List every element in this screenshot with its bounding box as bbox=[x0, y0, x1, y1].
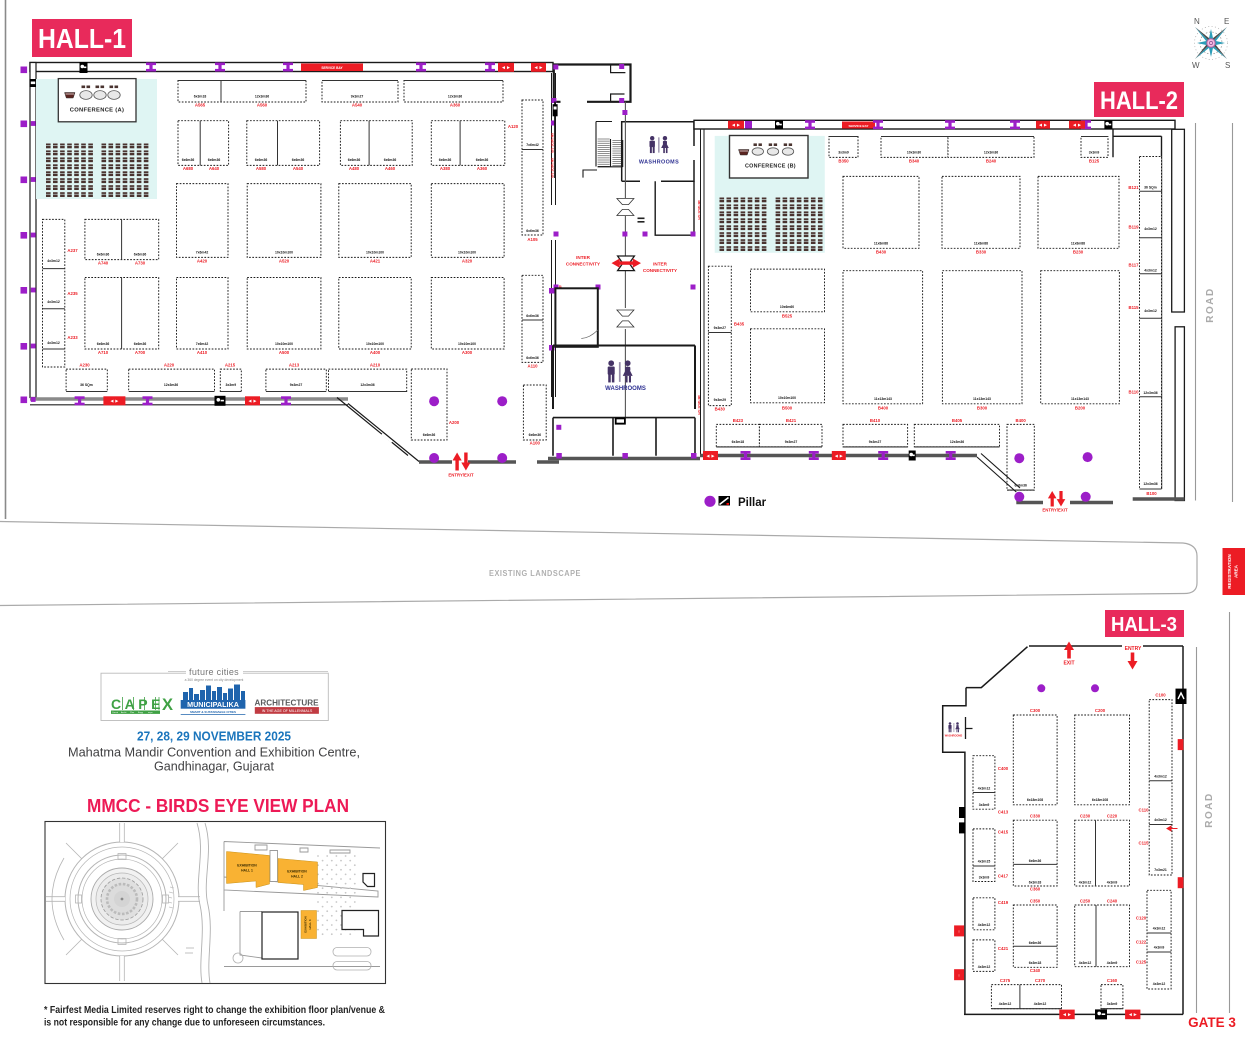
svg-text:C413: C413 bbox=[998, 810, 1009, 815]
svg-text:11x13m143: 11x13m143 bbox=[1071, 397, 1089, 401]
svg-text:Mahatma Mandir Convention and: Mahatma Mandir Convention and Exhibition… bbox=[68, 745, 360, 760]
svg-text:4x3m12: 4x3m12 bbox=[1144, 269, 1157, 273]
svg-text:B340: B340 bbox=[909, 159, 920, 164]
svg-text:S: S bbox=[1225, 61, 1230, 70]
svg-text:4x3m12: 4x3m12 bbox=[1154, 775, 1167, 779]
svg-text:C419: C419 bbox=[998, 900, 1009, 905]
svg-text:◄►: ◄► bbox=[109, 399, 119, 405]
svg-text:B200: B200 bbox=[1075, 406, 1086, 411]
svg-text:A710: A710 bbox=[98, 350, 109, 355]
svg-text:B230: B230 bbox=[1073, 250, 1084, 255]
svg-text:B435: B435 bbox=[734, 322, 745, 327]
svg-text:6x6m36: 6x6m36 bbox=[529, 433, 542, 437]
svg-text:12x3m36: 12x3m36 bbox=[1143, 482, 1157, 486]
svg-text:C330: C330 bbox=[1030, 814, 1041, 819]
svg-text:3x3m9: 3x3m9 bbox=[979, 876, 990, 880]
svg-text:7x3m21: 7x3m21 bbox=[1154, 868, 1167, 872]
svg-text:A235: A235 bbox=[67, 291, 78, 296]
svg-text:Gandhinagar, Gujarat: Gandhinagar, Gujarat bbox=[154, 759, 274, 774]
svg-text:◄►: ◄► bbox=[834, 453, 844, 459]
svg-text:WASHROOMS: WASHROOMS bbox=[639, 160, 679, 166]
svg-text:10x3m30: 10x3m30 bbox=[907, 151, 921, 155]
svg-text:A400: A400 bbox=[370, 350, 381, 355]
svg-text:3x3m9: 3x3m9 bbox=[1107, 1002, 1118, 1006]
svg-text:C400: C400 bbox=[998, 766, 1009, 771]
svg-text:A210: A210 bbox=[370, 363, 381, 368]
svg-text:X: X bbox=[162, 696, 173, 714]
svg-text:12x3m36: 12x3m36 bbox=[255, 95, 269, 99]
svg-text:6x6m36: 6x6m36 bbox=[292, 158, 305, 162]
svg-text:B400: B400 bbox=[1016, 418, 1027, 423]
svg-text:10x10m100: 10x10m100 bbox=[778, 396, 796, 400]
svg-text:C115: C115 bbox=[1138, 841, 1149, 846]
svg-text:6x6m36: 6x6m36 bbox=[476, 158, 489, 162]
svg-text:B525: B525 bbox=[782, 314, 793, 319]
svg-text:CONNECTIVITY: CONNECTIVITY bbox=[566, 262, 600, 267]
svg-text:C160: C160 bbox=[1107, 978, 1118, 983]
svg-text:ROAD: ROAD bbox=[1205, 287, 1216, 322]
svg-text:A520: A520 bbox=[279, 259, 290, 264]
svg-text:B350: B350 bbox=[838, 159, 849, 164]
svg-text:9x3m27: 9x3m27 bbox=[714, 326, 727, 330]
svg-text:A200: A200 bbox=[449, 420, 460, 425]
svg-text:B110: B110 bbox=[1128, 389, 1139, 394]
svg-text:6x6m36: 6x6m36 bbox=[526, 229, 539, 233]
svg-text:4x3m12: 4x3m12 bbox=[47, 259, 60, 263]
svg-text:6x6m36: 6x6m36 bbox=[423, 433, 436, 437]
svg-text:C360: C360 bbox=[1030, 887, 1041, 892]
svg-text:36 SQm: 36 SQm bbox=[80, 383, 93, 387]
svg-text:A360: A360 bbox=[477, 166, 488, 171]
svg-text:C350: C350 bbox=[1030, 899, 1041, 904]
svg-text:A300: A300 bbox=[462, 350, 473, 355]
svg-text:CONFERENCE (A): CONFERENCE (A) bbox=[70, 108, 124, 114]
svg-text:B117: B117 bbox=[1128, 262, 1139, 267]
svg-text:◄►: ◄► bbox=[1038, 123, 1048, 129]
svg-text:MMCC - BIRDS EYE VIEW PLAN: MMCC - BIRDS EYE VIEW PLAN bbox=[87, 795, 349, 816]
svg-text:6x3m18: 6x3m18 bbox=[1029, 961, 1042, 965]
svg-text:10x6m60: 10x6m60 bbox=[780, 305, 794, 309]
svg-text:A120: A120 bbox=[508, 124, 519, 129]
svg-text:A640: A640 bbox=[209, 166, 220, 171]
svg-text:3x3m9: 3x3m9 bbox=[979, 803, 990, 807]
svg-text:B115: B115 bbox=[1128, 305, 1139, 310]
svg-text:◄►: ◄► bbox=[1072, 123, 1082, 129]
svg-text:↑: ↑ bbox=[958, 973, 960, 978]
svg-text:10x10m100: 10x10m100 bbox=[458, 342, 476, 346]
svg-text:A233: A233 bbox=[67, 335, 78, 340]
svg-text:EXHIBITION: EXHIBITION bbox=[304, 916, 308, 933]
svg-text:INTER: INTER bbox=[576, 255, 590, 260]
svg-text:6x6m36: 6x6m36 bbox=[348, 158, 361, 162]
svg-text:B119: B119 bbox=[1128, 224, 1139, 229]
svg-text:11x8m88: 11x8m88 bbox=[874, 242, 888, 246]
svg-text:4x3m9: 4x3m9 bbox=[1154, 946, 1165, 950]
svg-text:HALL 2: HALL 2 bbox=[291, 875, 303, 879]
svg-text:4x3m12: 4x3m12 bbox=[1144, 309, 1157, 313]
svg-text:A700: A700 bbox=[135, 350, 146, 355]
svg-text:B405: B405 bbox=[952, 418, 963, 423]
svg-text:SERVICE BAY: SERVICE BAY bbox=[321, 66, 343, 70]
svg-text:6x3m18: 6x3m18 bbox=[1029, 881, 1042, 885]
svg-text:A560: A560 bbox=[257, 103, 268, 108]
svg-text:◄►: ◄► bbox=[248, 399, 258, 405]
svg-text:A360: A360 bbox=[450, 103, 461, 108]
svg-text:6x18m108: 6x18m108 bbox=[1027, 798, 1043, 802]
svg-text:A580: A580 bbox=[256, 166, 267, 171]
svg-text:3x3m9: 3x3m9 bbox=[226, 383, 237, 387]
svg-text:A110: A110 bbox=[527, 364, 538, 369]
svg-text:A420: A420 bbox=[197, 259, 208, 264]
svg-text:10x10m100: 10x10m100 bbox=[366, 251, 384, 255]
svg-text:HALL-3: HALL-3 bbox=[1111, 614, 1177, 636]
svg-text:4x3m12: 4x3m12 bbox=[1079, 881, 1092, 885]
svg-text:9x3m27: 9x3m27 bbox=[869, 440, 882, 444]
svg-text:SMART & SUSTAINABLE CITIES: SMART & SUSTAINABLE CITIES bbox=[190, 710, 236, 714]
svg-text:A500: A500 bbox=[279, 350, 290, 355]
svg-text:future cities: future cities bbox=[189, 667, 239, 677]
svg-text:B125: B125 bbox=[1089, 159, 1100, 164]
svg-text:Archit: Archit bbox=[121, 711, 127, 714]
svg-text:ENTRY: ENTRY bbox=[1125, 646, 1142, 652]
svg-text:6x6m36: 6x6m36 bbox=[255, 158, 268, 162]
svg-text:◄►: ◄► bbox=[501, 65, 511, 71]
svg-text:A320: A320 bbox=[462, 259, 473, 264]
svg-text:A730: A730 bbox=[135, 261, 146, 266]
svg-text:7x6m42: 7x6m42 bbox=[526, 143, 539, 147]
svg-text:MUNICIPALIKA: MUNICIPALIKA bbox=[187, 700, 239, 709]
svg-text:Constr: Constr bbox=[112, 711, 118, 714]
svg-text:6x6m36: 6x6m36 bbox=[526, 314, 539, 318]
svg-text:6M WIDE S/R: 6M WIDE S/R bbox=[550, 133, 554, 154]
svg-text:AREA: AREA bbox=[1234, 564, 1239, 578]
svg-text:B423: B423 bbox=[733, 418, 744, 423]
svg-text:C110: C110 bbox=[1138, 808, 1149, 813]
svg-text:B330: B330 bbox=[976, 250, 987, 255]
svg-text:4x3m9: 4x3m9 bbox=[1107, 961, 1118, 965]
svg-text:HALL-1: HALL-1 bbox=[38, 23, 126, 54]
svg-text:11x13m143: 11x13m143 bbox=[874, 397, 892, 401]
svg-text:EXISTING LANDSCAPE: EXISTING LANDSCAPE bbox=[489, 569, 581, 578]
svg-text:3x3m9: 3x3m9 bbox=[838, 151, 849, 155]
svg-text:6M WIDE S/R: 6M WIDE S/R bbox=[550, 158, 554, 179]
svg-text:6x6m36: 6x6m36 bbox=[526, 356, 539, 360]
svg-text:B410: B410 bbox=[870, 418, 881, 423]
svg-text:4x3m12: 4x3m12 bbox=[1079, 961, 1092, 965]
svg-text:ENTRY/EXIT: ENTRY/EXIT bbox=[1042, 508, 1068, 513]
svg-text:4x3m15: 4x3m15 bbox=[978, 860, 991, 864]
svg-text:12x3m36: 12x3m36 bbox=[448, 95, 462, 99]
svg-text:6x6m36: 6x6m36 bbox=[182, 158, 195, 162]
svg-text:6x6m36: 6x6m36 bbox=[1029, 941, 1042, 945]
svg-text:Engg: Engg bbox=[138, 712, 144, 714]
svg-text:4x3m12: 4x3m12 bbox=[999, 1002, 1012, 1006]
svg-text:A237: A237 bbox=[67, 248, 78, 253]
svg-text:C125: C125 bbox=[1136, 960, 1147, 965]
svg-text:↑: ↑ bbox=[958, 929, 960, 934]
svg-text:B240: B240 bbox=[986, 159, 997, 164]
svg-text:B400: B400 bbox=[878, 406, 889, 411]
svg-text:6x6m36: 6x6m36 bbox=[97, 342, 110, 346]
svg-text:10x10m100: 10x10m100 bbox=[458, 251, 476, 255]
svg-text:12x3m36: 12x3m36 bbox=[1143, 391, 1157, 395]
svg-text:a 360 degree event on city dev: a 360 degree event on city development bbox=[185, 678, 244, 682]
svg-text:C220: C220 bbox=[1107, 814, 1118, 819]
svg-text:◄►: ◄► bbox=[1062, 1012, 1072, 1018]
svg-text:6x6m36: 6x6m36 bbox=[384, 158, 397, 162]
svg-text:4x3m9: 4x3m9 bbox=[1107, 881, 1118, 885]
svg-text:C370: C370 bbox=[1035, 978, 1046, 983]
svg-text:B121: B121 bbox=[1128, 185, 1139, 190]
svg-text:A105: A105 bbox=[527, 237, 538, 242]
svg-text:4x3m12: 4x3m12 bbox=[1153, 982, 1166, 986]
svg-text:ROAD: ROAD bbox=[1204, 792, 1215, 827]
svg-text:is not responsible for any cha: is not responsible for any change due to… bbox=[44, 1018, 325, 1029]
svg-text:CONFERENCE (B): CONFERENCE (B) bbox=[745, 164, 796, 170]
svg-text:A100: A100 bbox=[530, 441, 541, 446]
svg-text:◄►: ◄► bbox=[706, 453, 716, 459]
svg-text:GATE 3: GATE 3 bbox=[1188, 1015, 1236, 1030]
svg-text:◄►: ◄► bbox=[1128, 1012, 1138, 1018]
svg-text:A540: A540 bbox=[352, 103, 363, 108]
svg-text:6x6m36: 6x6m36 bbox=[208, 158, 221, 162]
svg-text:A220: A220 bbox=[164, 363, 175, 368]
svg-text:EXIT: EXIT bbox=[1063, 661, 1074, 667]
svg-text:10x10m100: 10x10m100 bbox=[275, 342, 293, 346]
svg-text:4x3m12: 4x3m12 bbox=[978, 923, 991, 927]
svg-text:CONNECTIVITY: CONNECTIVITY bbox=[643, 268, 677, 273]
svg-text:4x3m12: 4x3m12 bbox=[1034, 1002, 1047, 1006]
svg-text:C300: C300 bbox=[1030, 708, 1041, 713]
svg-text:W: W bbox=[1192, 61, 1200, 70]
svg-text:N: N bbox=[1194, 17, 1200, 26]
svg-text:C230: C230 bbox=[1080, 814, 1091, 819]
svg-text:B421: B421 bbox=[786, 418, 797, 423]
svg-text:E: E bbox=[1224, 17, 1229, 26]
svg-text:C100: C100 bbox=[1155, 693, 1166, 698]
svg-text:HALL 3: HALL 3 bbox=[308, 919, 312, 929]
svg-text:EXHIBITION: EXHIBITION bbox=[287, 870, 307, 874]
svg-text:WASHROOMS: WASHROOMS bbox=[605, 386, 646, 392]
svg-text:6x6m36: 6x6m36 bbox=[134, 253, 147, 257]
svg-text:ARCHITECTURE: ARCHITECTURE bbox=[255, 698, 319, 708]
svg-text:6x6m36: 6x6m36 bbox=[97, 253, 110, 257]
svg-text:IN THE AGE OF MILLENNIALS: IN THE AGE OF MILLENNIALS bbox=[262, 709, 313, 713]
svg-text:12x3m36: 12x3m36 bbox=[984, 151, 998, 155]
svg-text:6x6m36: 6x6m36 bbox=[1029, 859, 1042, 863]
svg-text:7x6m42: 7x6m42 bbox=[196, 342, 209, 346]
svg-text:EXHIBITION: EXHIBITION bbox=[237, 864, 257, 868]
svg-text:A740: A740 bbox=[98, 261, 109, 266]
svg-text:A410: A410 bbox=[197, 350, 208, 355]
svg-text:C122: C122 bbox=[1136, 940, 1147, 945]
svg-text:INTER: INTER bbox=[653, 262, 667, 267]
svg-text:27, 28, 29 NOVEMBER 2025: 27, 28, 29 NOVEMBER 2025 bbox=[137, 729, 291, 744]
svg-text:A380: A380 bbox=[440, 166, 451, 171]
svg-text:A421: A421 bbox=[370, 259, 381, 264]
svg-text:REGISTRATION: REGISTRATION bbox=[1227, 554, 1232, 589]
svg-text:A460: A460 bbox=[385, 166, 396, 171]
svg-text:C417: C417 bbox=[998, 874, 1009, 879]
svg-text:A540: A540 bbox=[293, 166, 304, 171]
svg-text:6x6m36: 6x6m36 bbox=[134, 342, 147, 346]
svg-text:4x3m12: 4x3m12 bbox=[978, 965, 991, 969]
svg-text:4x3m12: 4x3m12 bbox=[1154, 818, 1167, 822]
svg-text:C421: C421 bbox=[998, 946, 1009, 951]
svg-text:A213: A213 bbox=[289, 363, 300, 368]
svg-text:6x3m18: 6x3m18 bbox=[732, 440, 745, 444]
svg-text:6x18m108: 6x18m108 bbox=[1092, 798, 1108, 802]
svg-text:12x3m36: 12x3m36 bbox=[360, 383, 374, 387]
svg-text:10x10m100: 10x10m100 bbox=[275, 251, 293, 255]
svg-text:C240: C240 bbox=[1107, 899, 1118, 904]
svg-text:36 SQm: 36 SQm bbox=[1144, 186, 1157, 190]
svg-text:C200: C200 bbox=[1095, 708, 1106, 713]
svg-text:11x13m143: 11x13m143 bbox=[973, 397, 991, 401]
svg-text:◄►: ◄► bbox=[731, 123, 741, 129]
svg-text:A565: A565 bbox=[195, 103, 206, 108]
svg-text:C415: C415 bbox=[998, 830, 1009, 835]
svg-text:C250: C250 bbox=[1080, 899, 1091, 904]
svg-text:6x3m18: 6x3m18 bbox=[194, 95, 207, 99]
svg-text:A215: A215 bbox=[225, 363, 236, 368]
svg-text:B300: B300 bbox=[977, 406, 988, 411]
svg-text:11x8m88: 11x8m88 bbox=[974, 242, 988, 246]
svg-text:B100: B100 bbox=[1146, 491, 1157, 496]
svg-text:A680: A680 bbox=[183, 166, 194, 171]
svg-text:4x3m12: 4x3m12 bbox=[1144, 227, 1157, 231]
svg-text:10x10m100: 10x10m100 bbox=[366, 342, 384, 346]
svg-text:9x3m29: 9x3m29 bbox=[714, 398, 727, 402]
svg-text:4x3m12: 4x3m12 bbox=[978, 787, 991, 791]
svg-text:HALL 1: HALL 1 bbox=[241, 869, 253, 873]
svg-text:B500: B500 bbox=[782, 406, 793, 411]
svg-text:12x3m36: 12x3m36 bbox=[164, 383, 178, 387]
svg-text:12x3m36: 12x3m36 bbox=[950, 440, 964, 444]
svg-text:7x6m42: 7x6m42 bbox=[196, 251, 209, 255]
svg-text:9x3m27: 9x3m27 bbox=[351, 95, 364, 99]
svg-text:SERVICE BAY: SERVICE BAY bbox=[848, 124, 868, 128]
svg-text:* Fairfest Media Limited reser: * Fairfest Media Limited reserves right … bbox=[44, 1005, 385, 1016]
svg-text:C375: C375 bbox=[1000, 978, 1011, 983]
svg-text:9x3m27: 9x3m27 bbox=[785, 440, 798, 444]
svg-text:11x8m88: 11x8m88 bbox=[1071, 242, 1085, 246]
svg-text:C340: C340 bbox=[1030, 968, 1041, 973]
svg-text:B430: B430 bbox=[876, 250, 887, 255]
svg-text:B430: B430 bbox=[715, 407, 726, 412]
svg-text:ENTRY/EXIT: ENTRY/EXIT bbox=[448, 473, 474, 478]
svg-text:A480: A480 bbox=[349, 166, 360, 171]
svg-text:C120: C120 bbox=[1136, 916, 1147, 921]
svg-text:4x3m12: 4x3m12 bbox=[47, 341, 60, 345]
svg-text:9x3m27: 9x3m27 bbox=[290, 383, 303, 387]
svg-text:HALL-2: HALL-2 bbox=[1100, 87, 1178, 115]
svg-text:4x3m12: 4x3m12 bbox=[1153, 927, 1166, 931]
svg-text:Pillar: Pillar bbox=[738, 497, 767, 509]
svg-text:6x6m36: 6x6m36 bbox=[439, 158, 452, 162]
svg-text:A230: A230 bbox=[79, 363, 90, 368]
svg-text:3x3m9: 3x3m9 bbox=[1089, 151, 1100, 155]
svg-text:WASHROOMS: WASHROOMS bbox=[945, 734, 963, 738]
svg-text:◄►: ◄► bbox=[534, 65, 544, 71]
svg-text:4x3m12: 4x3m12 bbox=[47, 300, 60, 304]
